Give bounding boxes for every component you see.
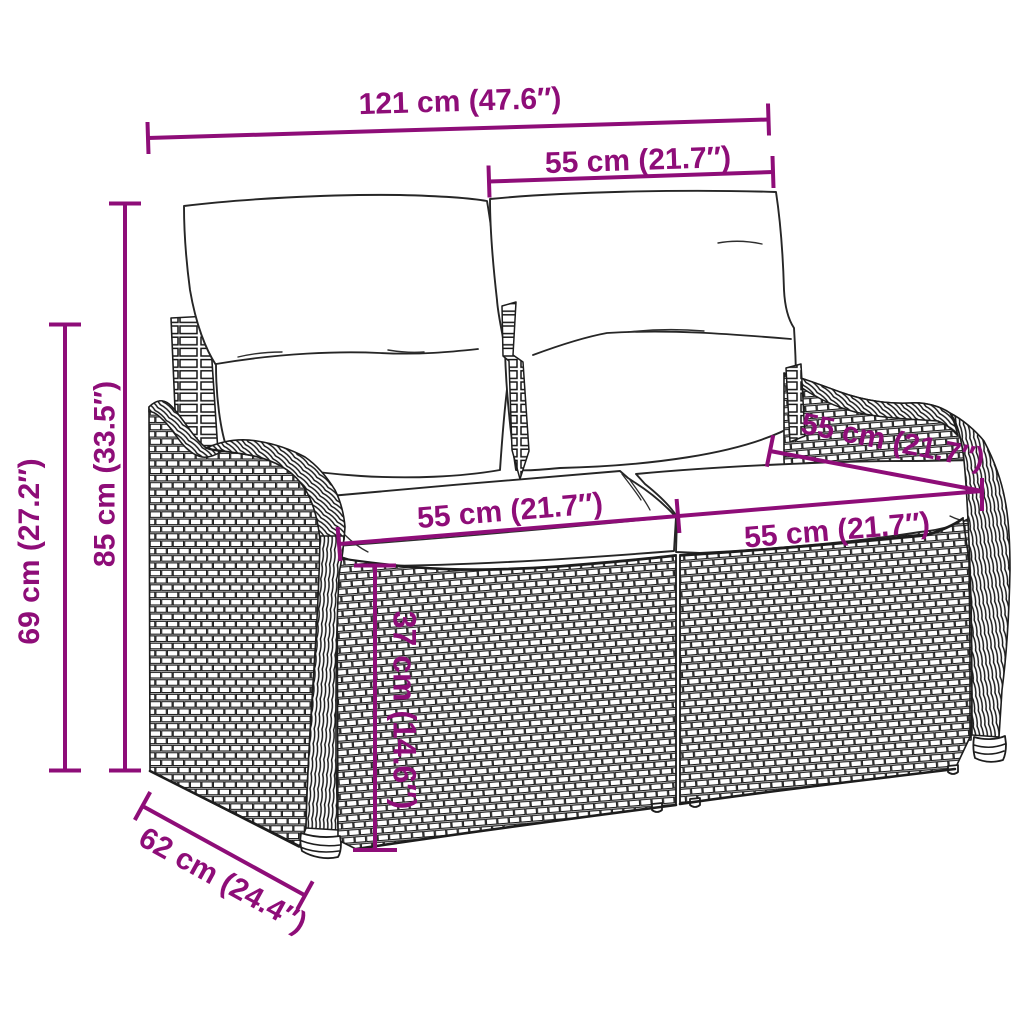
svg-text:37 cm (14.6″): 37 cm (14.6″) xyxy=(387,611,423,810)
svg-text:85 cm (33.5″): 85 cm (33.5″) xyxy=(89,381,122,567)
svg-text:55 cm (21.7″): 55 cm (21.7″) xyxy=(544,141,731,180)
svg-text:69 cm (27.2″): 69 cm (27.2″) xyxy=(13,458,46,644)
svg-text:121 cm (47.6″): 121 cm (47.6″) xyxy=(358,82,562,121)
